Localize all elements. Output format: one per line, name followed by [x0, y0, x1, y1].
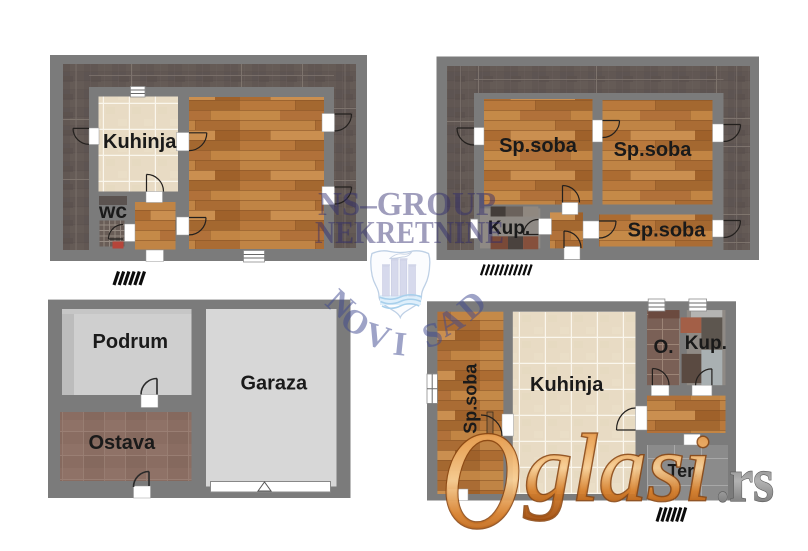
- svg-text:Kup.: Kup.: [685, 333, 727, 354]
- svg-text:Kuhinja: Kuhinja: [530, 374, 604, 396]
- svg-text:Ostava: Ostava: [88, 432, 156, 454]
- svg-text:Sp.soba: Sp.soba: [628, 220, 707, 242]
- svg-text:Garaza: Garaza: [240, 373, 308, 395]
- svg-text:Sp.soba: Sp.soba: [614, 139, 693, 161]
- svg-text:.rs: .rs: [716, 447, 774, 515]
- svg-text:NEKRETNINE: NEKRETNINE: [315, 214, 504, 250]
- svg-text:Sp.soba: Sp.soba: [499, 135, 578, 157]
- svg-text:Kuhinja: Kuhinja: [103, 131, 177, 153]
- svg-text:I: I: [391, 326, 408, 364]
- svg-text:Podrum: Podrum: [93, 331, 169, 353]
- svg-text:glasi: glasi: [524, 415, 711, 521]
- svg-text:O.: O.: [654, 337, 674, 358]
- svg-text:wc: wc: [98, 200, 127, 223]
- svg-text:O: O: [441, 403, 521, 551]
